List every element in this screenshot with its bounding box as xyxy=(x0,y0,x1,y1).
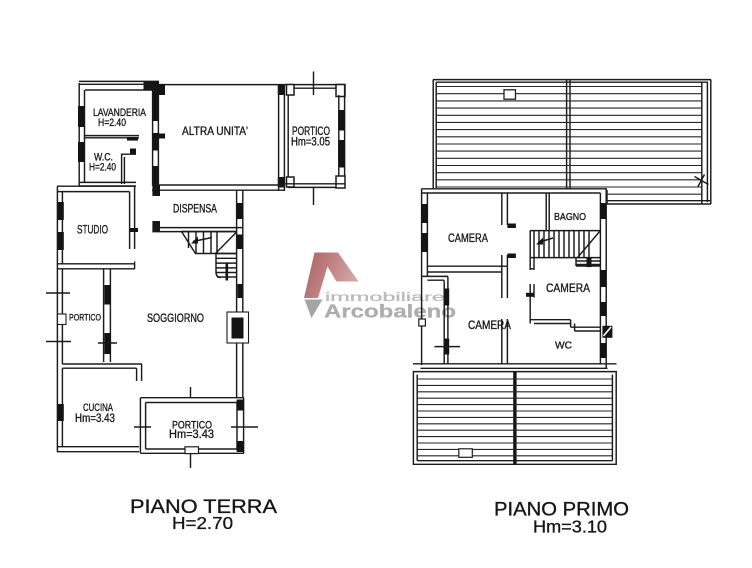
svg-text:DISPENSA: DISPENSA xyxy=(173,204,217,216)
svg-text:CAMERA: CAMERA xyxy=(546,281,590,295)
svg-text:Arcobaleno: Arcobaleno xyxy=(324,302,456,322)
svg-text:H=2.40: H=2.40 xyxy=(98,117,126,129)
svg-text:Hm=3.10: Hm=3.10 xyxy=(533,517,607,537)
svg-text:BAGNO: BAGNO xyxy=(554,211,586,223)
svg-text:STUDIO: STUDIO xyxy=(77,225,108,237)
svg-text:CAMERA: CAMERA xyxy=(448,231,488,245)
svg-text:H=2.40: H=2.40 xyxy=(89,162,116,174)
svg-text:WC: WC xyxy=(555,340,572,352)
svg-text:Hm=3.43: Hm=3.43 xyxy=(75,413,115,425)
svg-text:H=2.70: H=2.70 xyxy=(172,513,233,533)
svg-text:ALTRA UNITA': ALTRA UNITA' xyxy=(182,124,248,138)
svg-text:Hm=3.05: Hm=3.05 xyxy=(291,137,330,149)
svg-text:Hm=3.43: Hm=3.43 xyxy=(169,429,214,441)
svg-text:PORTICO: PORTICO xyxy=(69,313,101,324)
svg-text:CAMERA: CAMERA xyxy=(468,318,511,332)
svg-text:SOGGIORNO: SOGGIORNO xyxy=(147,311,204,325)
